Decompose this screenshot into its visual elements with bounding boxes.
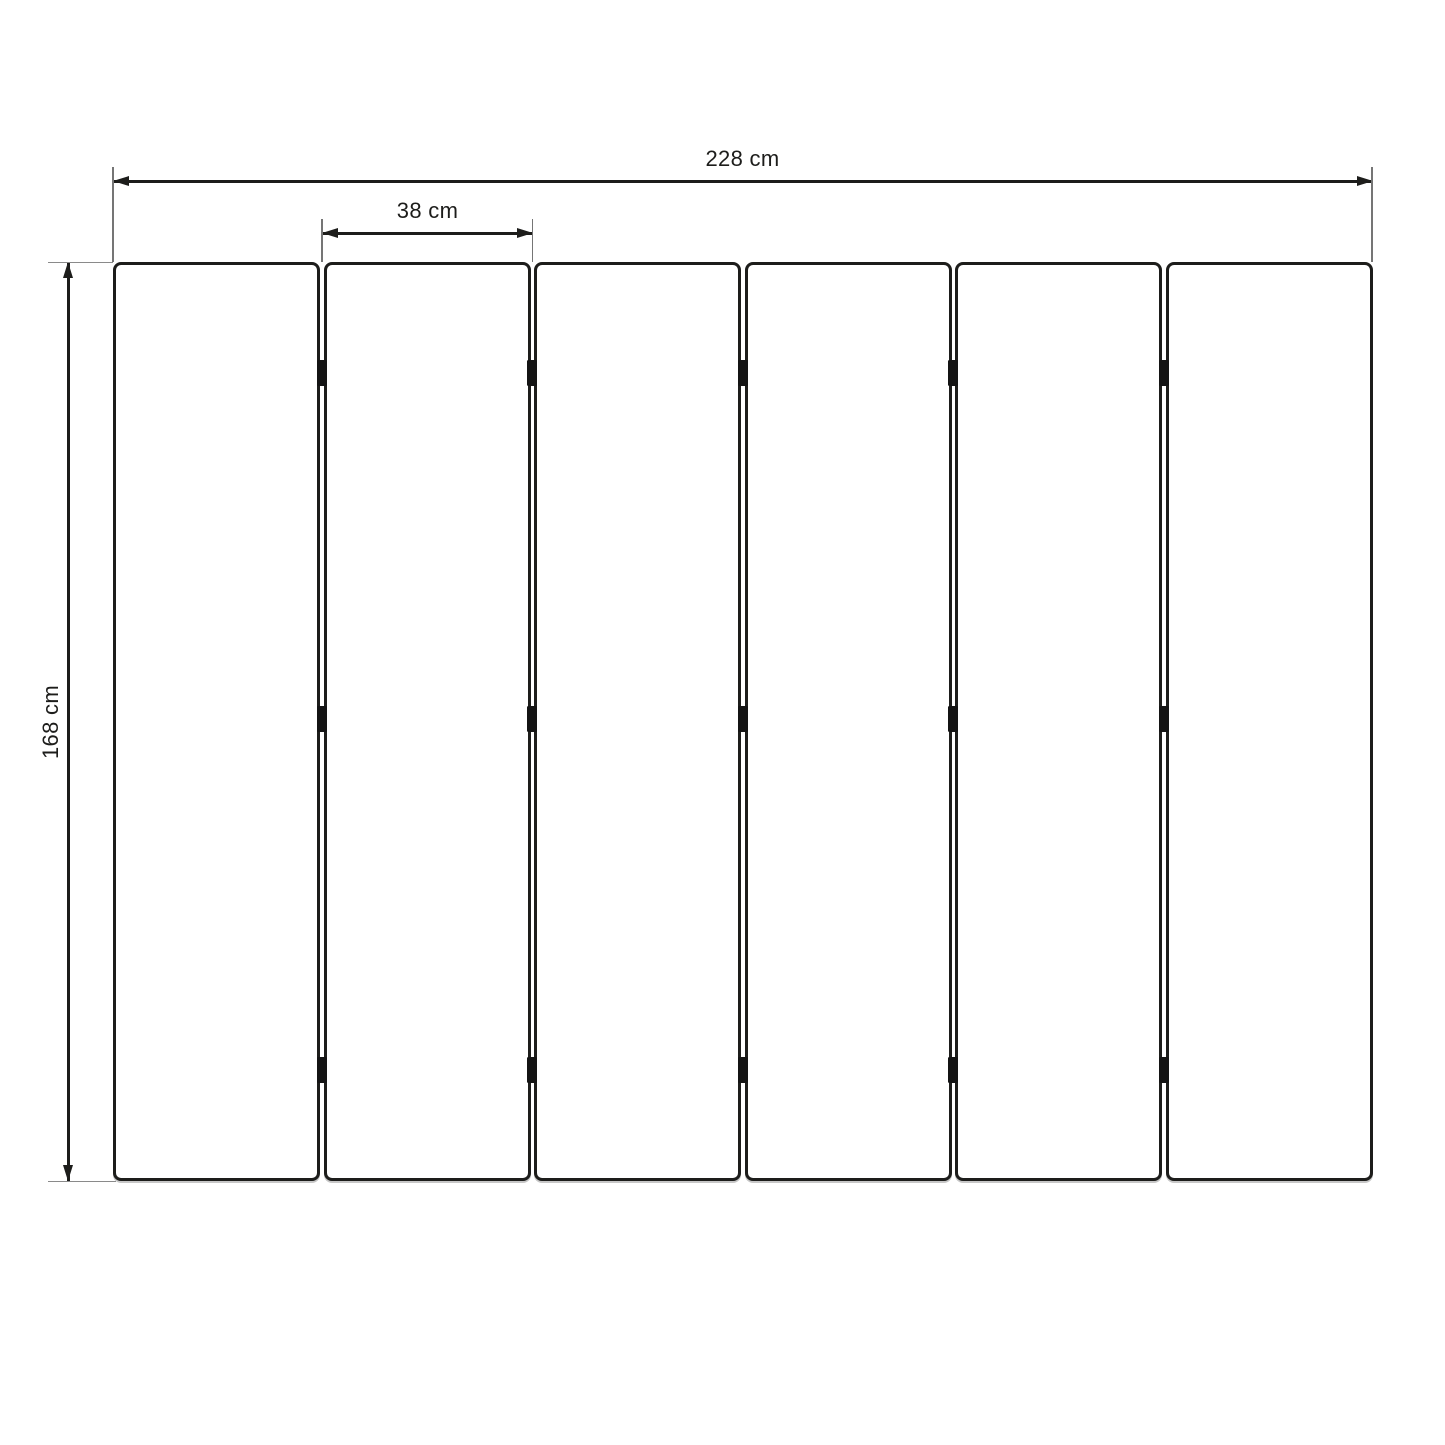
hinge-icon xyxy=(948,706,958,732)
hinge-icon xyxy=(1159,360,1169,386)
hinge-icon xyxy=(1159,706,1169,732)
hinge-icon xyxy=(527,706,537,732)
height-dimension-line xyxy=(67,262,70,1181)
panel-joint-2 xyxy=(527,262,537,1181)
hinge-icon xyxy=(317,1057,327,1083)
hinge-icon xyxy=(948,360,958,386)
diagram-canvas: 228 cm 38 cm 168 cm xyxy=(0,0,1445,1445)
panel-6 xyxy=(1166,262,1373,1181)
panel-5 xyxy=(955,262,1162,1181)
hinge-icon xyxy=(1159,1057,1169,1083)
panel-1 xyxy=(113,262,320,1181)
panel-2 xyxy=(324,262,531,1181)
height-extension-line-bottom xyxy=(48,1181,116,1183)
hinge-icon xyxy=(948,1057,958,1083)
total-width-dimension-line xyxy=(113,180,1373,183)
panel-width-label: 38 cm xyxy=(328,198,528,224)
total-width-label: 228 cm xyxy=(593,146,893,172)
height-extension-line-top xyxy=(48,262,113,264)
panel-4 xyxy=(745,262,952,1181)
panel-width-dimension-line xyxy=(322,232,533,235)
hinge-icon xyxy=(317,706,327,732)
hinge-icon xyxy=(738,360,748,386)
panel-3 xyxy=(534,262,741,1181)
hinge-icon xyxy=(527,360,537,386)
total-width-extension-line-left xyxy=(112,167,114,262)
hinge-icon xyxy=(738,1057,748,1083)
hinge-icon xyxy=(738,706,748,732)
total-width-extension-line-right xyxy=(1371,167,1373,262)
panel-joint-4 xyxy=(948,262,958,1181)
height-label: 168 cm xyxy=(38,662,64,782)
hinge-icon xyxy=(527,1057,537,1083)
hinge-icon xyxy=(317,360,327,386)
panel-joint-1 xyxy=(317,262,327,1181)
panel-width-extension-line-right xyxy=(532,219,534,262)
panel-joint-3 xyxy=(738,262,748,1181)
panel-joint-5 xyxy=(1159,262,1169,1181)
panel-width-extension-line-left xyxy=(321,219,323,262)
